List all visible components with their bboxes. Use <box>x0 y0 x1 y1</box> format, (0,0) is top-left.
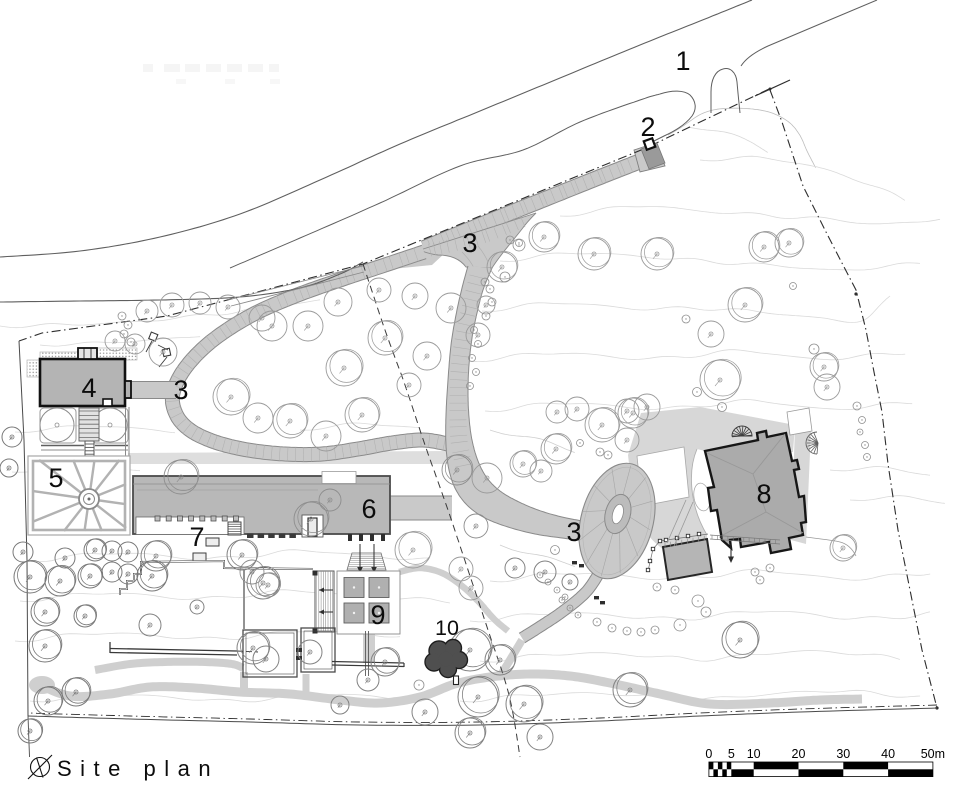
svg-text:40: 40 <box>881 747 895 761</box>
svg-text:Site plan: Site plan <box>57 756 219 781</box>
svg-text:30: 30 <box>836 747 850 761</box>
svg-text:2: 2 <box>640 112 655 142</box>
svg-text:9: 9 <box>370 600 385 630</box>
svg-text:0: 0 <box>705 747 712 761</box>
svg-text:20: 20 <box>792 747 806 761</box>
svg-text:7: 7 <box>189 522 204 552</box>
svg-text:50m: 50m <box>921 747 945 761</box>
svg-text:10: 10 <box>435 616 459 640</box>
svg-text:3: 3 <box>173 375 188 405</box>
svg-text:5: 5 <box>48 463 63 493</box>
svg-text:10: 10 <box>747 747 761 761</box>
svg-text:4: 4 <box>81 373 96 403</box>
svg-text:3: 3 <box>566 517 581 547</box>
svg-text:6: 6 <box>361 494 376 524</box>
svg-text:1: 1 <box>675 46 690 76</box>
svg-text:5: 5 <box>728 747 735 761</box>
svg-text:8: 8 <box>756 479 771 509</box>
svg-text:3: 3 <box>462 228 477 258</box>
